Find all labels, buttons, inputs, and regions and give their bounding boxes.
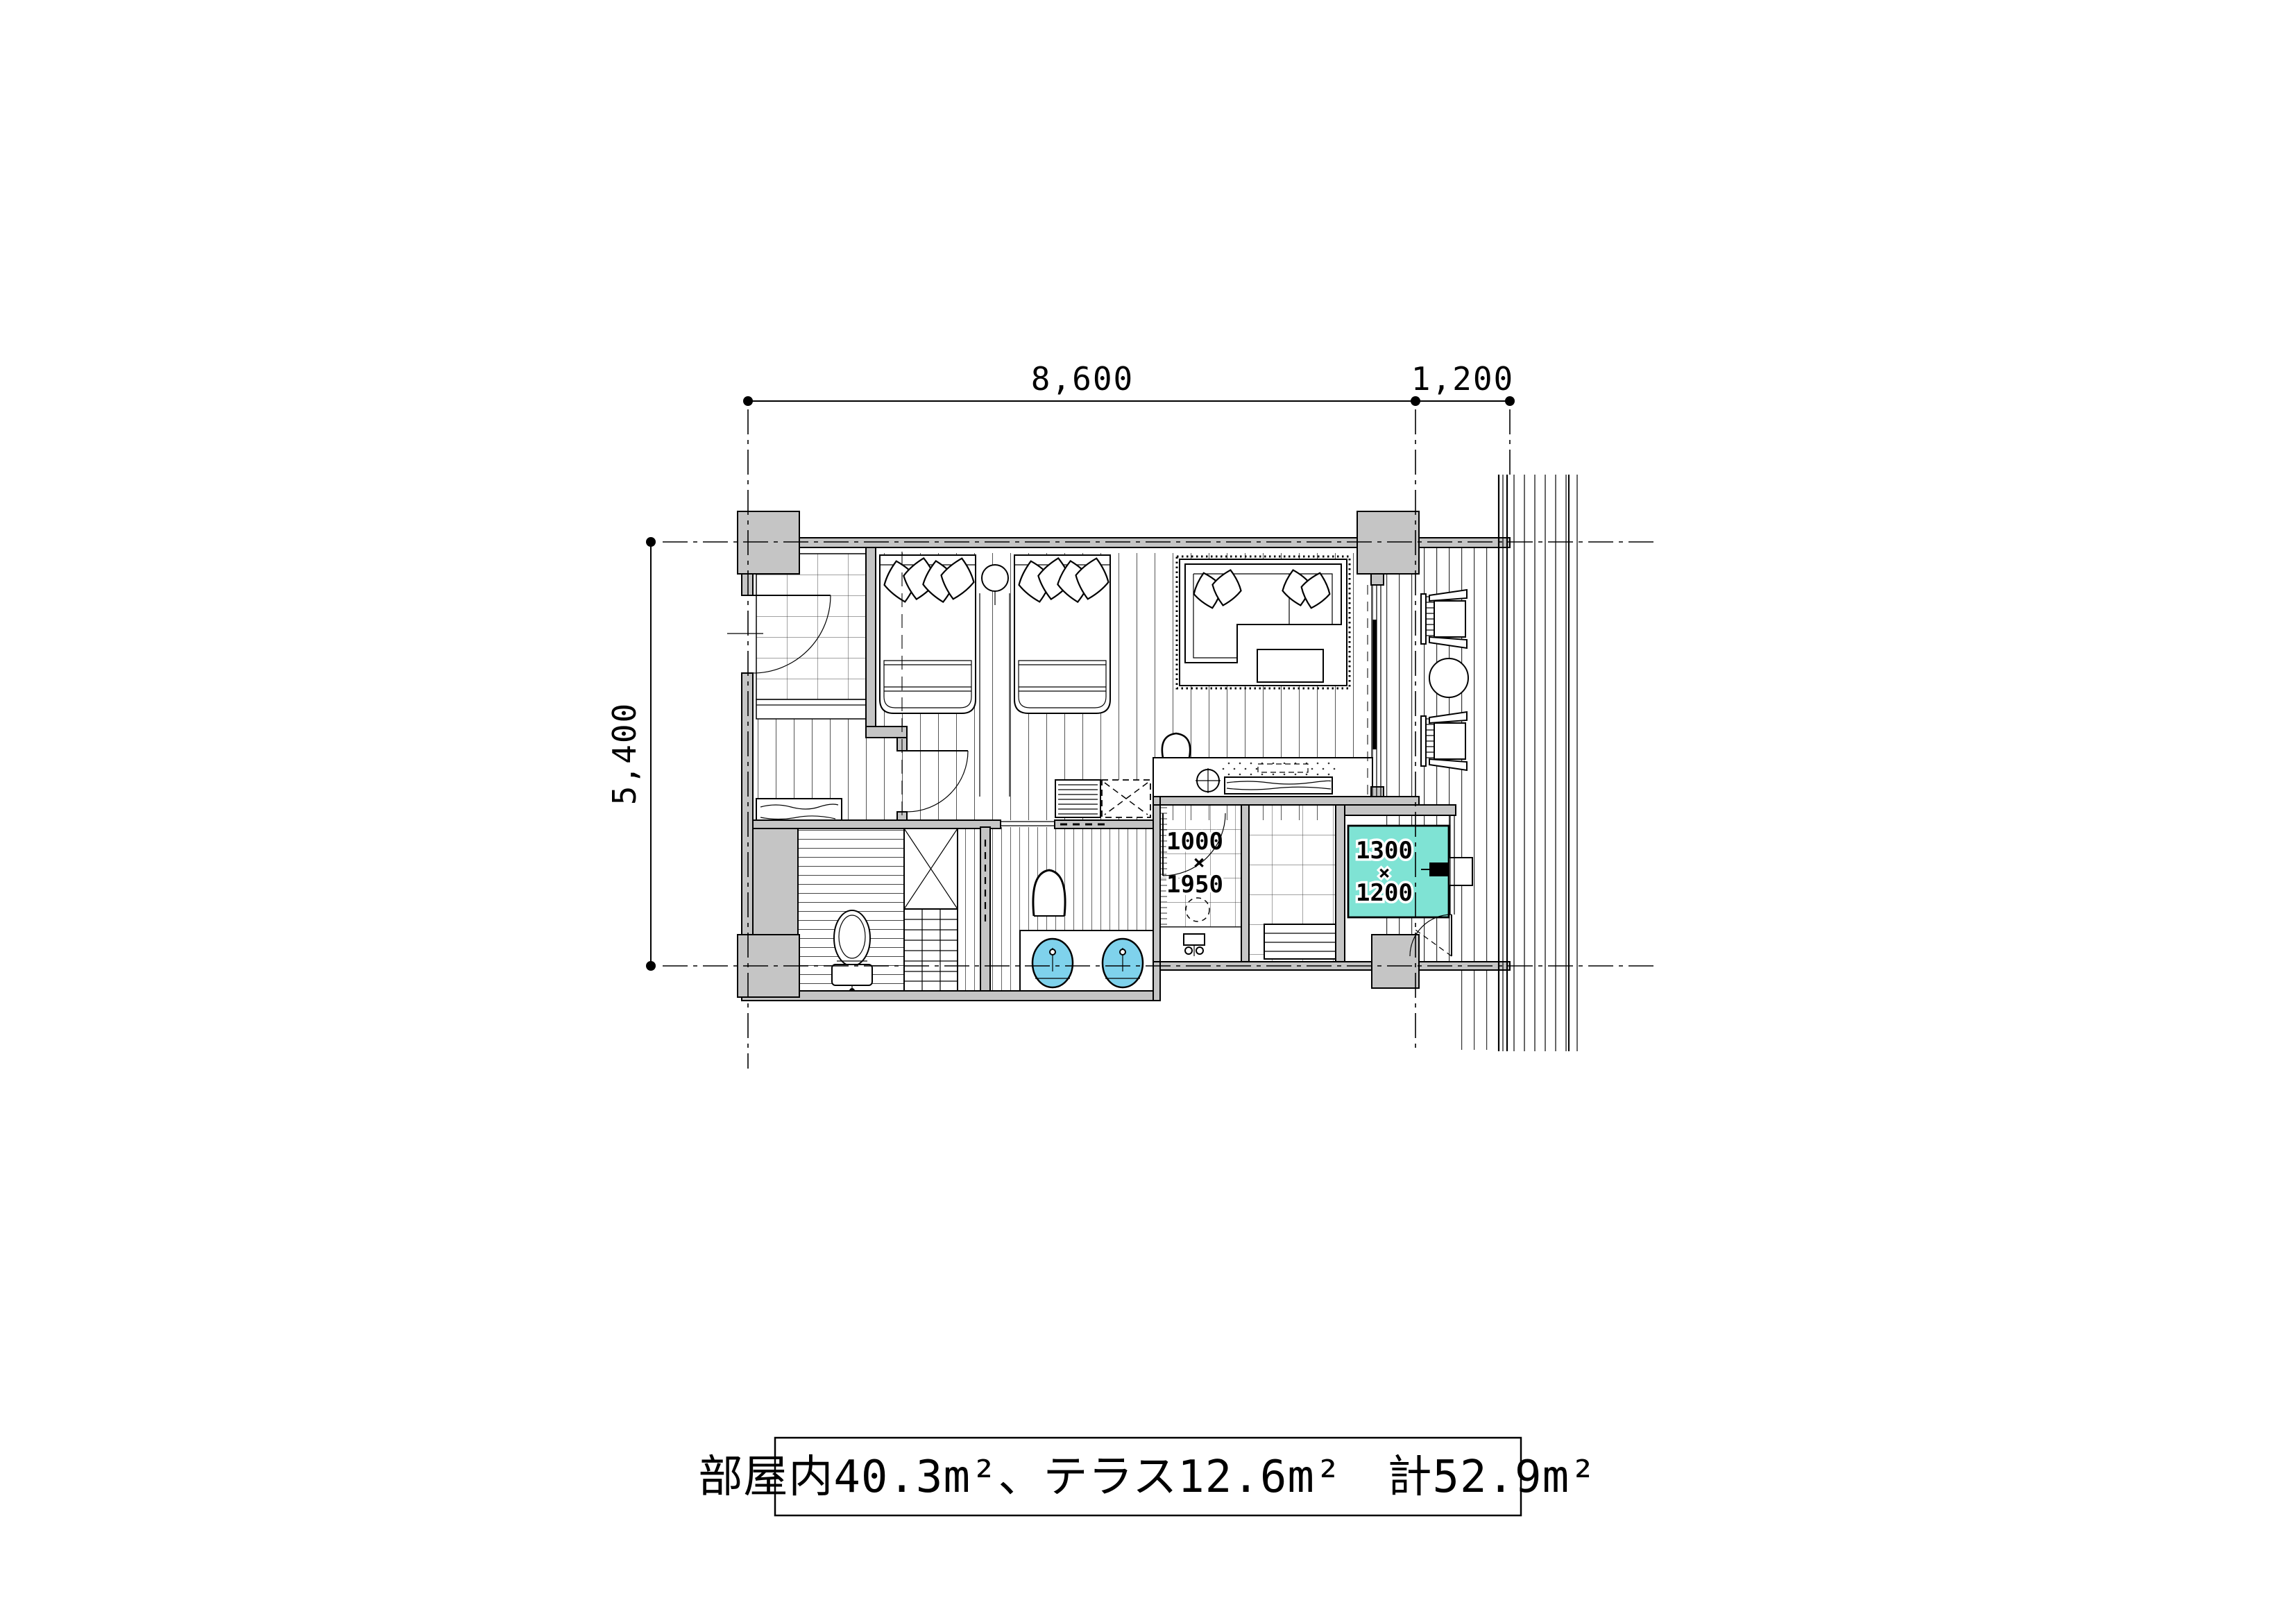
wall-entrance-jog bbox=[866, 726, 907, 738]
dimension-dot bbox=[1411, 396, 1420, 406]
wall-entrance-right bbox=[866, 547, 876, 726]
wall-left-lower bbox=[742, 673, 753, 935]
wall-wet-right bbox=[1153, 797, 1419, 805]
column-top-left bbox=[738, 511, 799, 574]
column-top-right bbox=[1357, 511, 1419, 574]
wall-top bbox=[742, 538, 1419, 547]
window-stub-bottom bbox=[1371, 787, 1384, 797]
entrance-tile-floor bbox=[756, 554, 867, 719]
window-stub-top bbox=[1371, 574, 1384, 585]
area-note-box: 部屋内40.3m²、テラス12.6m² 計52.9m² bbox=[698, 1438, 1597, 1515]
closet-shelf bbox=[904, 909, 958, 991]
luggage-rack bbox=[1055, 780, 1100, 817]
floor-plan-svg: 1300 × 1200 1000 × 1950 bbox=[0, 0, 2296, 1623]
wall-shower-left bbox=[1153, 805, 1160, 962]
floor-plan-page: 1300 × 1200 1000 × 1950 bbox=[0, 0, 2296, 1623]
towel-shelf bbox=[1225, 777, 1332, 794]
terrace-table bbox=[1429, 658, 1468, 697]
shower-depth-label: 1950 bbox=[1166, 871, 1223, 899]
vanity-stool bbox=[1033, 870, 1065, 916]
wall-bottom-left bbox=[742, 991, 1158, 1001]
dimension-dot bbox=[743, 396, 753, 406]
bed-1 bbox=[880, 555, 978, 713]
bath-bench bbox=[1264, 924, 1339, 959]
dimension-top-main: 8,600 bbox=[1031, 360, 1134, 398]
wall-top-terrace bbox=[1419, 538, 1510, 547]
wall-jog bbox=[1153, 962, 1160, 1001]
floor-hatch bbox=[1102, 780, 1150, 817]
shower-fixture bbox=[1184, 934, 1205, 956]
dimension-top-terrace: 1,200 bbox=[1411, 360, 1514, 398]
wall-bath-west bbox=[1336, 805, 1345, 962]
closet-cross-box bbox=[904, 829, 958, 909]
toilet bbox=[832, 910, 872, 998]
wall-bath-north bbox=[1336, 805, 1456, 815]
dimension-dot bbox=[1505, 396, 1515, 406]
bathtub-depth-label: 1200 bbox=[1356, 879, 1413, 907]
bed-2 bbox=[1014, 555, 1113, 713]
dimension-left-side: 5,400 bbox=[606, 702, 643, 805]
desk-counter bbox=[1153, 758, 1372, 797]
wall-left-upper bbox=[742, 574, 753, 595]
tray-outline bbox=[1258, 764, 1308, 772]
desk-chair bbox=[1162, 733, 1190, 758]
coffee-table bbox=[1257, 649, 1323, 682]
vanity-counter bbox=[1020, 931, 1160, 991]
area-note-text: 部屋内40.3m²、テラス12.6m² 計52.9m² bbox=[698, 1452, 1597, 1503]
wall-wet-left-b bbox=[1055, 820, 1160, 829]
wall-wet-left-a bbox=[753, 820, 1001, 829]
wall-bottom-right bbox=[1158, 962, 1510, 970]
bathtub-width-label: 1300 bbox=[1356, 837, 1413, 865]
wall-shower-bath bbox=[1241, 805, 1249, 962]
duct-shaft bbox=[753, 829, 798, 935]
dimension-dot bbox=[646, 537, 656, 547]
dimension-dot bbox=[646, 961, 656, 971]
